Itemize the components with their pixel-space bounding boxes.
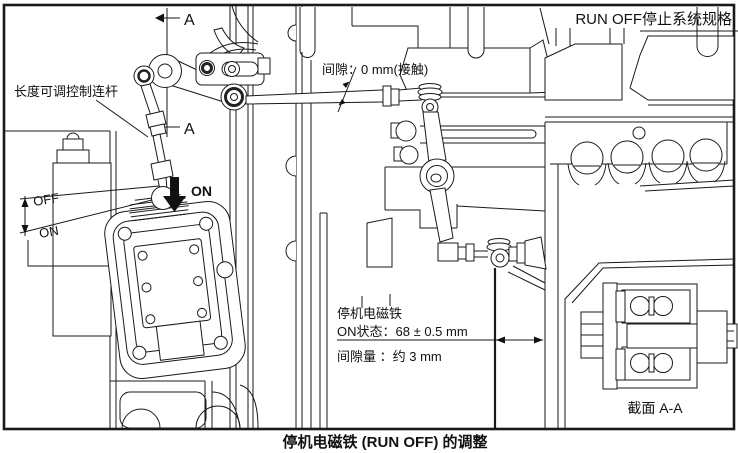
section-view-label: 截面 A-A <box>627 400 683 416</box>
solenoid-spec-on-state: ON状态：68 ± 0.5 mm <box>337 324 468 339</box>
figure-page: A A <box>0 0 738 453</box>
section-letter-bottom: A <box>184 121 195 138</box>
section-arrow-top-icon <box>155 14 164 23</box>
stop-solenoid-body <box>101 189 248 381</box>
plunger-on-label: ON <box>191 183 212 199</box>
figure-caption: 停机电磁铁 (RUN OFF) 的调整 <box>283 433 488 451</box>
solenoid-spec-gap: 间隙量 ：约 3 mm <box>337 349 442 364</box>
diagram-canvas: A A <box>0 0 738 453</box>
section-letter-top: A <box>184 12 195 29</box>
spec-title: RUN OFF停止系统规格 <box>575 11 732 28</box>
gap-zero-label: 间隙：0 mm(接触) <box>322 62 428 77</box>
valve-caps <box>568 139 725 185</box>
solenoid-spec-title: 停机电磁铁 <box>337 306 402 321</box>
section-view-a-a <box>581 283 737 389</box>
control-rod <box>246 86 421 106</box>
link-label: 长度可调控制连杆 <box>14 84 118 99</box>
